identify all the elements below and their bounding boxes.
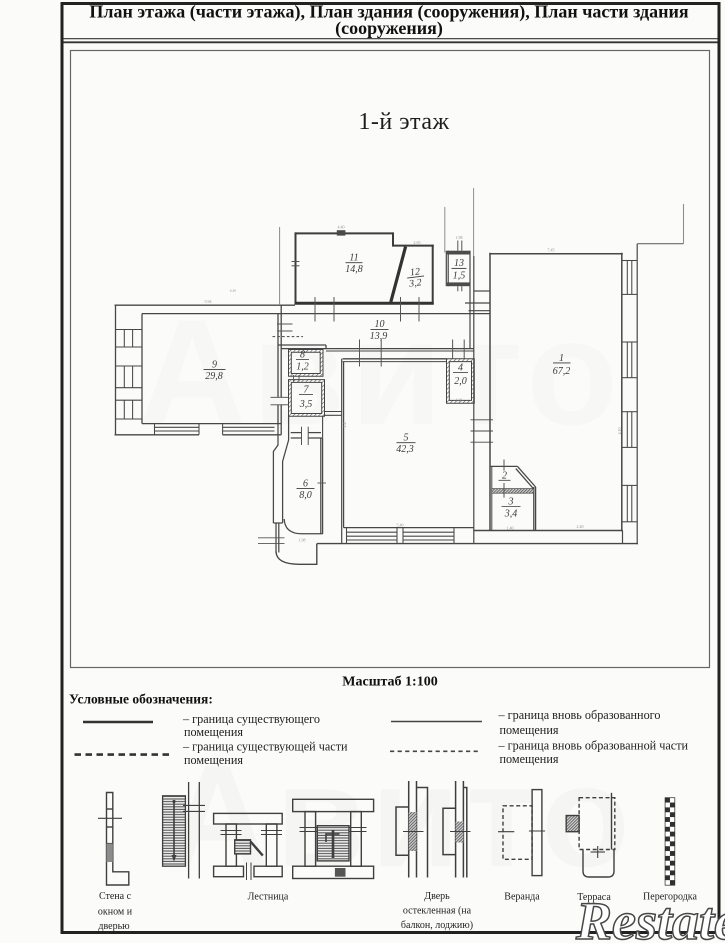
svg-text:8,0: 8,0: [299, 490, 312, 501]
svg-text:Стена с: Стена с: [99, 891, 132, 902]
svg-text:балкон, лоджию): балкон, лоджию): [401, 920, 473, 931]
svg-text:а.эо: а.эо: [230, 288, 237, 293]
svg-text:13,9: 13,9: [370, 331, 388, 342]
svg-text:2,0: 2,0: [454, 376, 467, 387]
svg-text:4.40: 4.40: [338, 225, 345, 230]
svg-text:остекленная (на: остекленная (на: [403, 906, 472, 917]
svg-text:2.4: 2.4: [342, 423, 347, 428]
svg-text:6: 6: [303, 478, 308, 489]
svg-text:67,2: 67,2: [553, 366, 571, 377]
svg-text:Условные обозначения:: Условные обозначения:: [69, 692, 213, 707]
svg-text:(сооружения): (сооружения): [335, 18, 443, 39]
svg-text:помещения: помещения: [500, 723, 559, 737]
svg-text:Масштаб 1:100: Масштаб 1:100: [342, 675, 437, 690]
svg-text:помещения: помещения: [500, 752, 559, 766]
svg-text:1: 1: [559, 353, 564, 364]
svg-text:– граница вновь образованного: – граница вновь образованного: [498, 708, 661, 722]
svg-text:5.94: 5.94: [205, 299, 212, 304]
svg-text:1-й этаж: 1-й этаж: [358, 109, 449, 135]
svg-text:Веранда: Веранда: [504, 892, 540, 903]
svg-text:Restate: Restate: [575, 891, 725, 943]
svg-text:помещения: помещения: [184, 753, 243, 767]
svg-text:1.98: 1.98: [456, 235, 463, 240]
svg-text:дверью: дверью: [98, 921, 130, 932]
svg-text:3,2: 3,2: [408, 277, 423, 290]
svg-text:4.10: 4.10: [617, 428, 622, 435]
svg-text:2.05: 2.05: [414, 240, 421, 245]
svg-text:– граница вновь образованной ч: – граница вновь образованной части: [498, 739, 689, 753]
svg-text:9: 9: [212, 359, 217, 370]
svg-text:29,8: 29,8: [205, 371, 223, 382]
svg-text:1,2: 1,2: [296, 362, 309, 373]
svg-text:5.40: 5.40: [397, 522, 404, 527]
svg-text:42,3: 42,3: [396, 444, 414, 455]
svg-text:– граница существующего: – граница существующего: [182, 712, 320, 726]
svg-text:10: 10: [375, 319, 385, 330]
svg-text:3,4: 3,4: [504, 509, 518, 520]
svg-text:14,8: 14,8: [345, 264, 363, 275]
svg-text:1,5: 1,5: [453, 271, 466, 282]
svg-text:1.98: 1.98: [299, 538, 306, 543]
svg-text:2.40: 2.40: [577, 524, 584, 529]
svg-text:13: 13: [454, 258, 464, 269]
svg-text:8: 8: [300, 350, 305, 361]
svg-text:2: 2: [502, 470, 507, 481]
svg-text:Лестница: Лестница: [248, 892, 289, 903]
svg-text:5: 5: [404, 433, 409, 444]
svg-text:3: 3: [508, 497, 514, 508]
svg-text:Дверь: Дверь: [424, 891, 450, 902]
svg-text:– граница существующей части: – граница существующей части: [182, 740, 348, 754]
svg-text:4: 4: [458, 363, 463, 374]
svg-text:7.45: 7.45: [548, 248, 555, 253]
svg-text:1.06: 1.06: [456, 398, 463, 403]
svg-text:окном и: окном и: [98, 907, 133, 918]
svg-text:11: 11: [349, 253, 358, 264]
svg-text:3,5: 3,5: [299, 399, 313, 410]
svg-text:помещения: помещения: [184, 725, 243, 739]
svg-text:1.40: 1.40: [507, 526, 514, 531]
